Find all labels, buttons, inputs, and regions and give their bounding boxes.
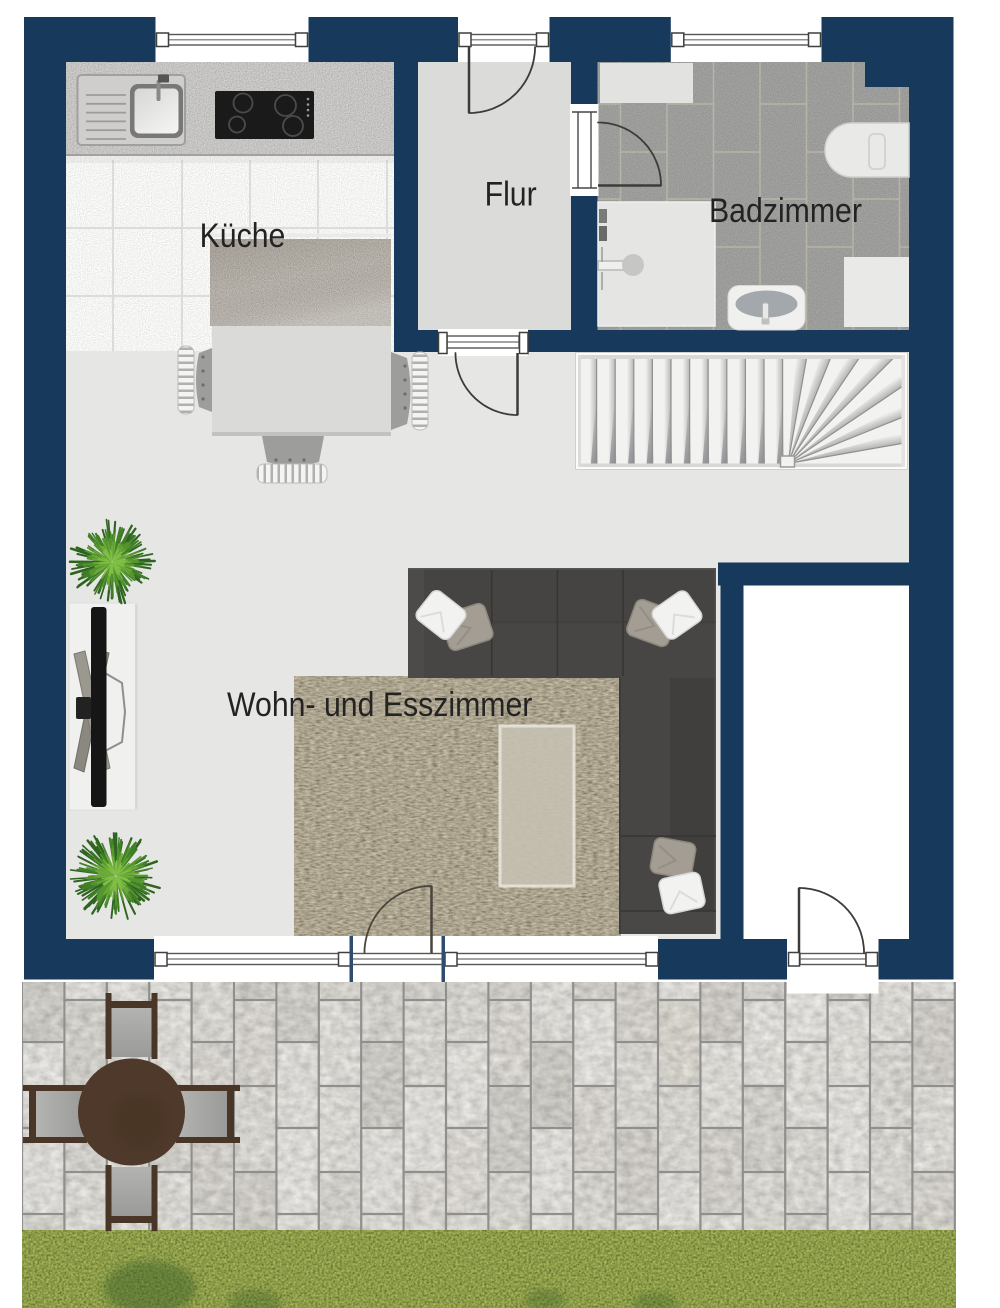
svg-text:Küche: Küche: [200, 216, 286, 254]
svg-text:Flur: Flur: [485, 175, 537, 213]
svg-text:Badzimmer: Badzimmer: [709, 191, 862, 229]
svg-text:Wohn- und Esszimmer: Wohn- und Esszimmer: [227, 685, 533, 723]
